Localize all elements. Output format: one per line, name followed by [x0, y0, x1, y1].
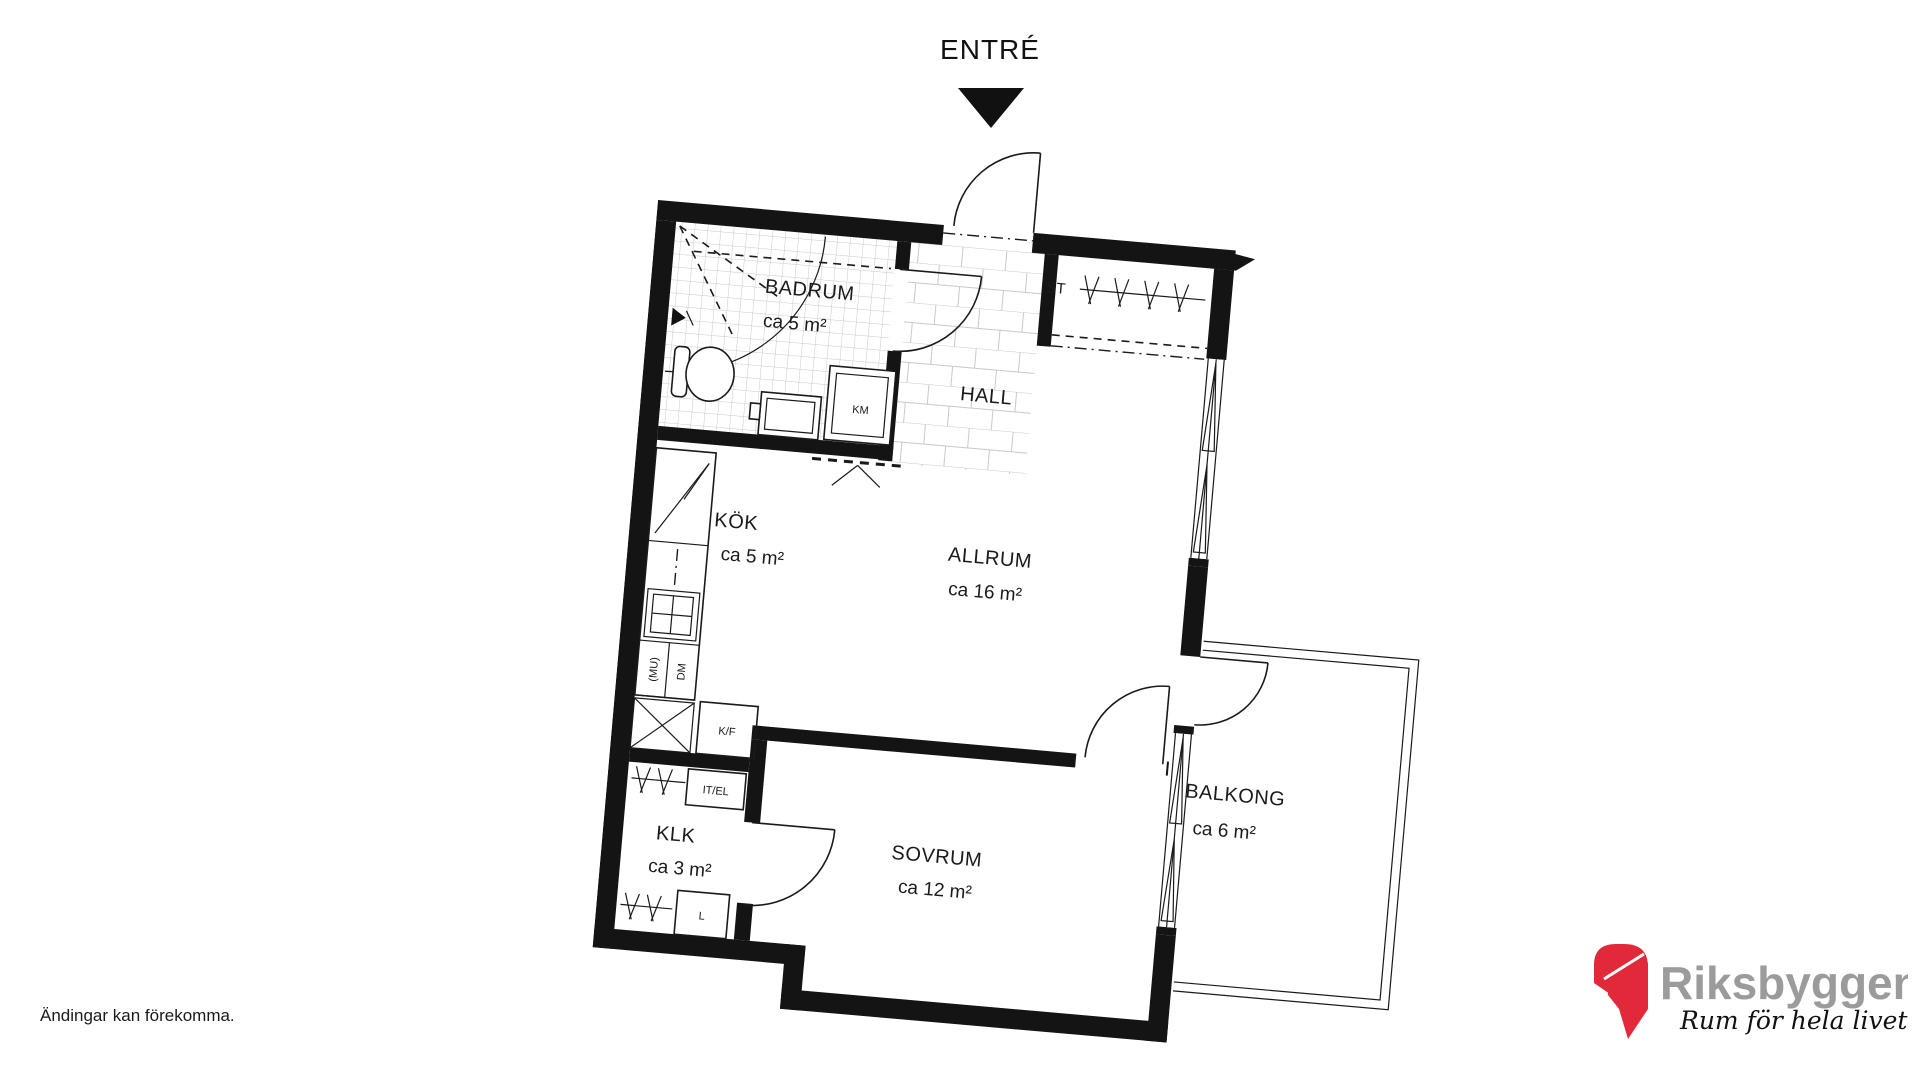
- riksbyggen-logo-text: Riksbyggen: [1660, 957, 1908, 1009]
- riksbyggen-logo-icon: [1594, 944, 1648, 1039]
- kitchen-counter: (MU) DM K/F: [630, 448, 780, 759]
- linen-cabinet: L: [674, 890, 730, 938]
- room-label-allrum: ALLRUM: [947, 544, 1033, 573]
- washing-machine-label: KM: [852, 404, 869, 417]
- room-area-kok: ca 5 m²: [720, 544, 785, 570]
- it-el-label: IT/EL: [702, 784, 729, 798]
- opening-marker: [810, 458, 904, 491]
- room-label-hall: HALL: [959, 383, 1013, 409]
- window-bedroom: [1155, 733, 1196, 928]
- dishwasher-label: DM: [675, 663, 688, 681]
- window-livingroom: [1187, 358, 1228, 559]
- closet-label-st: ST: [1046, 279, 1067, 298]
- bedroom-door: [1085, 680, 1170, 765]
- room-label-kok: KÖK: [713, 509, 759, 535]
- room-area-balkong: ca 6 m²: [1192, 818, 1257, 844]
- hall-floor-tiles: [892, 242, 1045, 475]
- room-label-klk: KLK: [655, 822, 696, 847]
- entrance-door: [943, 145, 1040, 241]
- fridge-freezer: K/F: [696, 702, 758, 759]
- room-area-klk: ca 3 m²: [647, 856, 712, 882]
- room-area-allrum: ca 16 m²: [947, 579, 1022, 606]
- stove: [644, 589, 700, 641]
- riksbyggen-logo-tagline: Rum för hela livet: [1679, 1006, 1908, 1035]
- balcony-door: [1194, 657, 1268, 731]
- worktop-cross: [630, 698, 694, 753]
- room-label-balkong: BALKONG: [1184, 780, 1286, 811]
- disclaimer-text: Ändingar kan förekomma.: [40, 1006, 235, 1026]
- fridge-freezer-label: K/F: [718, 725, 736, 738]
- linen-cabinet-label: L: [698, 910, 705, 922]
- klk-door: [745, 823, 835, 913]
- riksbyggen-logo: Riksbyggen Rum för hela livet: [1578, 933, 1908, 1063]
- entry-label: ENTRÉ: [905, 34, 1075, 66]
- micro-label: (MU): [647, 657, 661, 682]
- floorplan-drawing: KM (MU) DM: [587, 90, 1504, 1080]
- washing-machine: KM: [824, 366, 896, 445]
- room-area-sovrum: ca 12 m²: [897, 877, 972, 904]
- it-el-cabinet: IT/EL: [685, 769, 746, 810]
- room-label-sovrum: SOVRUM: [891, 842, 983, 872]
- st-closet: [1051, 273, 1213, 359]
